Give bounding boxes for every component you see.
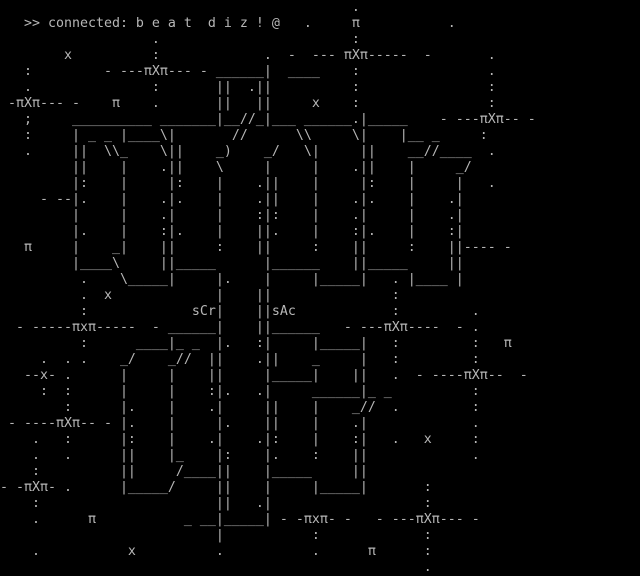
terminal-screen: . >> connected: b e a t d i z ! @ . π . … [0, 0, 640, 576]
ascii-art-text: . >> connected: b e a t d i z ! @ . π . … [0, 0, 640, 576]
